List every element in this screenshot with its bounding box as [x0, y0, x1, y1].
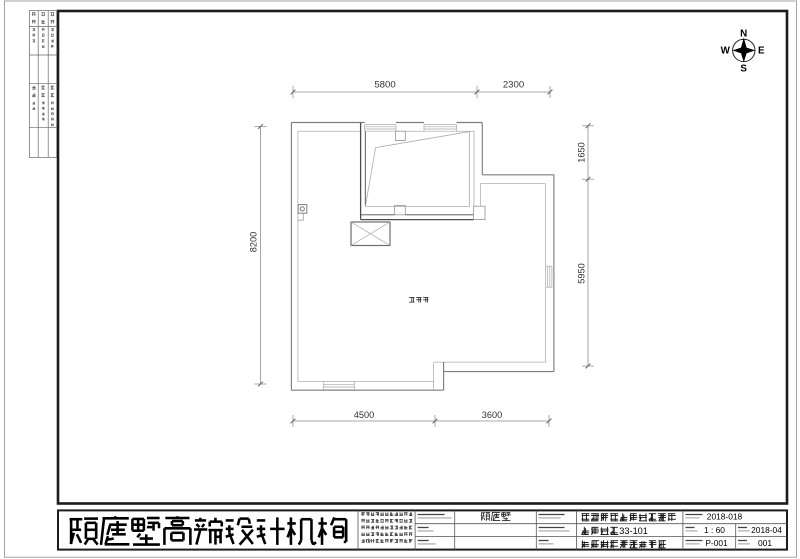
svg-text:5800: 5800	[374, 79, 395, 90]
svg-text:33-101: 33-101	[619, 526, 648, 536]
svg-text:S: S	[740, 64, 747, 75]
svg-text:2018-018: 2018-018	[707, 511, 743, 521]
svg-text:5950: 5950	[577, 263, 587, 283]
svg-text:E: E	[758, 46, 765, 57]
svg-text:3600: 3600	[482, 410, 502, 420]
svg-text:1 : 60: 1 : 60	[704, 525, 725, 535]
svg-text:2018-04: 2018-04	[751, 525, 782, 535]
svg-text:4500: 4500	[354, 410, 374, 420]
svg-text:P-001: P-001	[705, 538, 728, 548]
svg-text:001: 001	[758, 538, 772, 548]
svg-text:8200: 8200	[249, 232, 259, 252]
svg-text:W: W	[721, 46, 731, 57]
svg-text:1650: 1650	[577, 142, 587, 162]
svg-text:2300: 2300	[503, 79, 524, 90]
svg-text:N: N	[740, 28, 747, 39]
